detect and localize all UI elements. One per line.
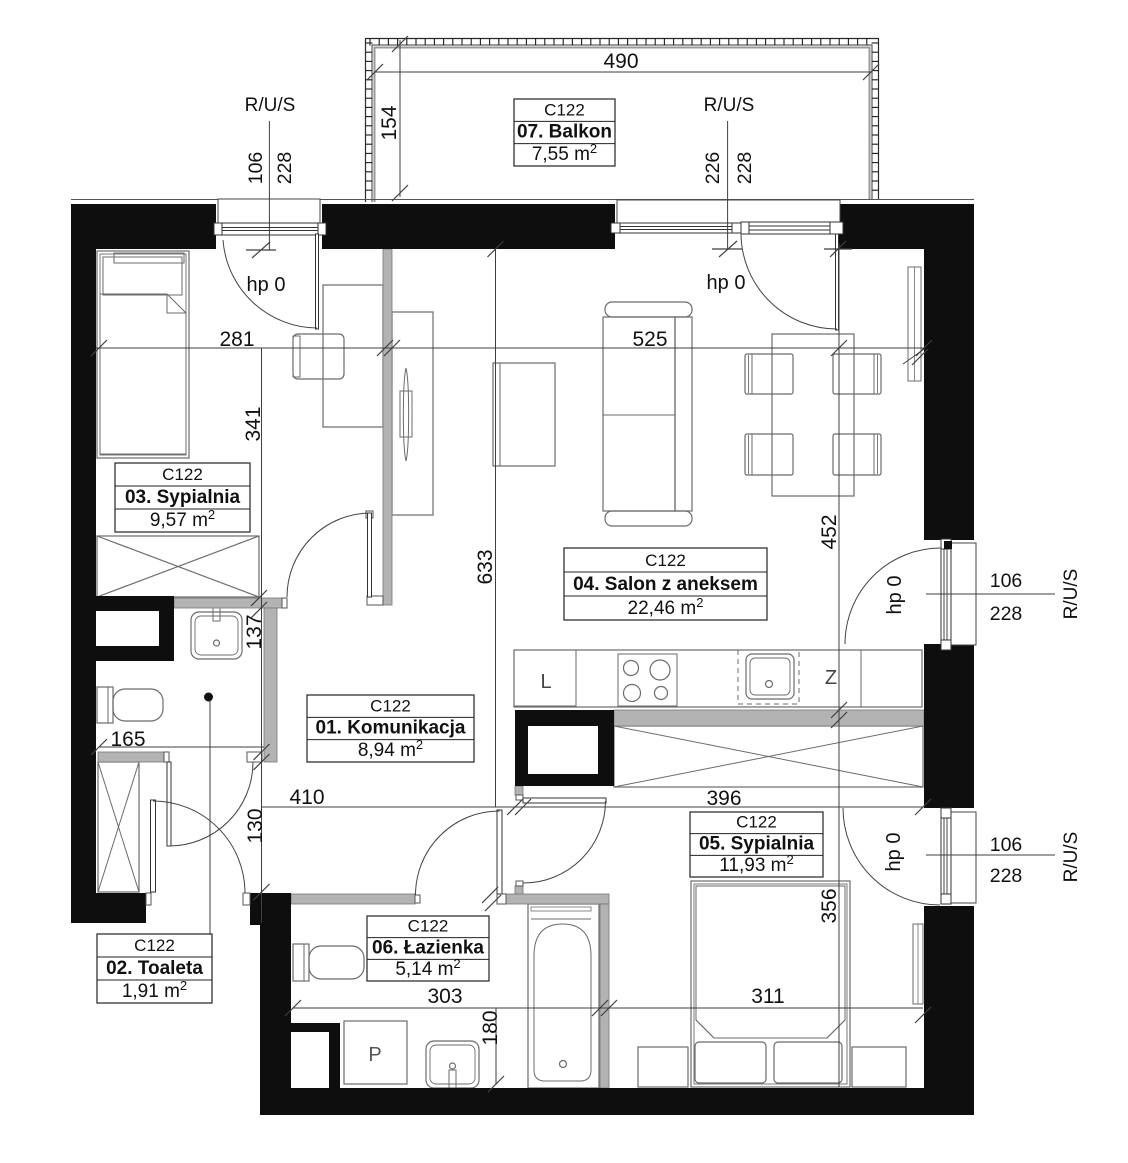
svg-text:P: P: [368, 1044, 381, 1066]
svg-text:396: 396: [706, 787, 741, 810]
svg-text:R/U/S: R/U/S: [1061, 832, 1082, 883]
svg-text:180: 180: [479, 1010, 502, 1045]
svg-text:07. Balkon: 07. Balkon: [517, 122, 612, 143]
svg-text:341: 341: [242, 406, 265, 441]
svg-text:5,14 m2: 5,14 m2: [395, 956, 460, 980]
svg-text:490: 490: [603, 50, 638, 73]
svg-text:228: 228: [990, 603, 1023, 625]
svg-text:hp 0: hp 0: [884, 576, 906, 615]
svg-text:L: L: [540, 671, 551, 693]
svg-text:R/U/S: R/U/S: [1061, 569, 1082, 620]
svg-text:311: 311: [751, 985, 784, 1008]
svg-text:226: 226: [702, 152, 724, 185]
svg-text:C122: C122: [134, 936, 175, 955]
svg-text:228: 228: [990, 865, 1023, 887]
svg-text:303: 303: [427, 985, 462, 1008]
svg-text:C122: C122: [736, 813, 777, 832]
svg-text:05. Sypialnia: 05. Sypialnia: [699, 833, 815, 854]
svg-text:C122: C122: [544, 100, 585, 119]
svg-text:03. Sypialnia: 03. Sypialnia: [125, 487, 241, 508]
svg-text:452: 452: [818, 514, 841, 549]
svg-text:106: 106: [245, 152, 267, 185]
svg-text:04. Salon z aneksem: 04. Salon z aneksem: [573, 574, 758, 595]
svg-text:154: 154: [378, 105, 401, 140]
svg-text:01. Komunikacja: 01. Komunikacja: [316, 718, 466, 739]
svg-text:11,93 m2: 11,93 m2: [719, 852, 793, 876]
svg-text:06. Łazienka: 06. Łazienka: [372, 937, 484, 958]
svg-text:C122: C122: [645, 551, 686, 570]
svg-text:228: 228: [274, 152, 296, 185]
svg-text:1,91 m2: 1,91 m2: [122, 978, 187, 1002]
svg-text:22,46 m2: 22,46 m2: [628, 595, 704, 619]
svg-text:9,57 m2: 9,57 m2: [150, 507, 215, 531]
svg-text:8,94 m2: 8,94 m2: [358, 737, 423, 761]
svg-text:356: 356: [818, 888, 841, 923]
svg-text:410: 410: [289, 786, 324, 809]
svg-text:106: 106: [990, 834, 1023, 856]
svg-text:106: 106: [990, 570, 1023, 592]
svg-text:165: 165: [110, 728, 145, 751]
svg-text:C122: C122: [370, 696, 411, 715]
svg-text:02. Toaleta: 02. Toaleta: [106, 958, 203, 979]
svg-text:C122: C122: [408, 917, 449, 936]
svg-text:525: 525: [632, 328, 667, 351]
svg-text:281: 281: [219, 328, 254, 351]
svg-text:hp 0: hp 0: [707, 272, 746, 294]
svg-text:137: 137: [243, 614, 266, 649]
svg-text:228: 228: [734, 152, 756, 185]
svg-text:130: 130: [244, 808, 267, 843]
svg-text:hp 0: hp 0: [883, 833, 905, 872]
svg-text:7,55 m2: 7,55 m2: [532, 141, 597, 165]
svg-text:Z: Z: [825, 667, 837, 689]
svg-text:C122: C122: [162, 465, 203, 484]
svg-text:633: 633: [474, 549, 497, 584]
svg-text:R/U/S: R/U/S: [245, 95, 296, 116]
svg-text:hp 0: hp 0: [247, 274, 286, 296]
svg-text:R/U/S: R/U/S: [704, 95, 755, 116]
